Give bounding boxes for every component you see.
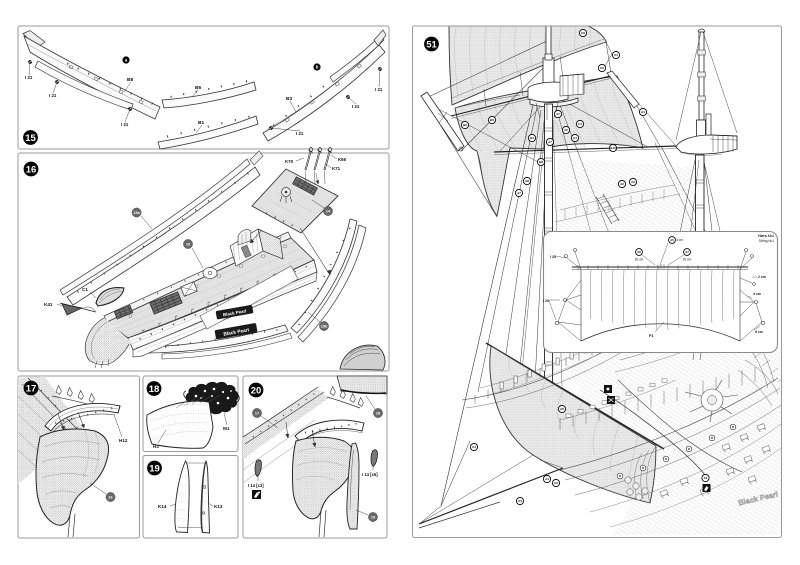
svg-text:A6: A6: [637, 250, 641, 254]
svg-text:A5: A5: [560, 407, 564, 411]
svg-text:15a: 15a: [133, 211, 140, 215]
svg-text:10: 10: [186, 242, 190, 246]
svg-text:A7: A7: [556, 112, 560, 116]
svg-text:A5: A5: [670, 238, 674, 242]
svg-text:C4: C4: [614, 53, 618, 57]
svg-text:K71: K71: [332, 166, 341, 171]
svg-text:K41: K41: [44, 302, 53, 307]
svg-text:B1: B1: [198, 120, 204, 126]
svg-text:C4: C4: [578, 122, 582, 126]
svg-text:A7: A7: [517, 191, 521, 195]
svg-text:H12: H12: [119, 438, 128, 443]
svg-text:18: 18: [149, 384, 160, 395]
svg-text:15: 15: [25, 133, 36, 144]
svg-text:20 cm: 20 cm: [635, 258, 644, 262]
svg-text:C4: C4: [573, 136, 577, 140]
svg-text:A7: A7: [685, 250, 689, 254]
svg-text:String №1: String №1: [759, 239, 774, 243]
svg-text:A2: A2: [554, 481, 558, 485]
svg-text:K14: K14: [158, 504, 167, 509]
svg-text:B4: B4: [530, 136, 534, 140]
svg-text:A4: A4: [545, 477, 549, 481]
svg-text:I 25: I 25: [550, 255, 556, 259]
svg-text:19: 19: [149, 463, 160, 474]
svg-text:I 21: I 21: [121, 122, 129, 127]
svg-text:A4: A4: [641, 110, 645, 114]
svg-text:B5: B5: [490, 118, 494, 122]
svg-text:a: a: [125, 58, 128, 63]
svg-text:51: 51: [426, 39, 437, 50]
svg-text:16: 16: [108, 495, 112, 499]
svg-text:18: 18: [376, 411, 380, 415]
svg-text:B8: B8: [539, 160, 543, 164]
svg-text:F1: F1: [649, 333, 654, 338]
svg-text:I 21: I 21: [352, 104, 360, 109]
svg-text:B3: B3: [286, 96, 292, 102]
svg-text:C1: C1: [82, 287, 88, 292]
svg-text:B6: B6: [463, 123, 467, 127]
svg-text:A7: A7: [548, 140, 552, 144]
svg-text:K70: K70: [285, 159, 294, 164]
svg-text:17: 17: [26, 383, 37, 394]
svg-text:A2: A2: [620, 182, 624, 186]
svg-text:K66: K66: [338, 157, 347, 162]
svg-text:A4: A4: [472, 445, 476, 449]
svg-text:A5: A5: [564, 128, 568, 132]
svg-text:B10: B10: [610, 146, 616, 150]
svg-text:17: 17: [255, 411, 259, 415]
svg-text:M1: M1: [223, 426, 230, 431]
svg-text:b: b: [316, 65, 319, 70]
svg-text:B8: B8: [127, 77, 133, 83]
svg-text:15b: 15b: [321, 324, 328, 328]
svg-text:A1: A1: [704, 476, 708, 480]
svg-text:A8: A8: [525, 179, 529, 183]
svg-text:A3: A3: [518, 499, 522, 503]
svg-text:I 21: I 21: [375, 87, 383, 92]
svg-text:3 cm: 3 cm: [676, 238, 683, 242]
svg-text:I 14 [x3]: I 14 [x3]: [248, 483, 264, 488]
svg-text:19: 19: [371, 515, 375, 519]
svg-text:I 25: I 25: [543, 299, 549, 303]
svg-text:I 21: I 21: [49, 93, 57, 98]
svg-text:I 21: I 21: [296, 131, 304, 136]
svg-text:20: 20: [251, 385, 262, 396]
svg-text:4 cm: 4 cm: [753, 292, 761, 296]
svg-text:6 cm: 6 cm: [755, 330, 763, 334]
svg-text:K13: K13: [214, 504, 223, 509]
svg-text:H3: H3: [153, 444, 159, 449]
svg-text:C6: C6: [600, 66, 604, 70]
svg-text:I 21: I 21: [25, 75, 33, 80]
svg-text:16: 16: [26, 164, 37, 175]
svg-text:20 cm: 20 cm: [683, 258, 692, 262]
svg-text:2 cm: 2 cm: [758, 275, 766, 279]
svg-text:A3: A3: [631, 180, 635, 184]
svg-text:C8: C8: [581, 31, 585, 35]
svg-text:B6: B6: [195, 85, 201, 91]
svg-text:I 14 [x6]: I 14 [x6]: [362, 472, 378, 477]
svg-text:Нить №1: Нить №1: [758, 234, 774, 238]
